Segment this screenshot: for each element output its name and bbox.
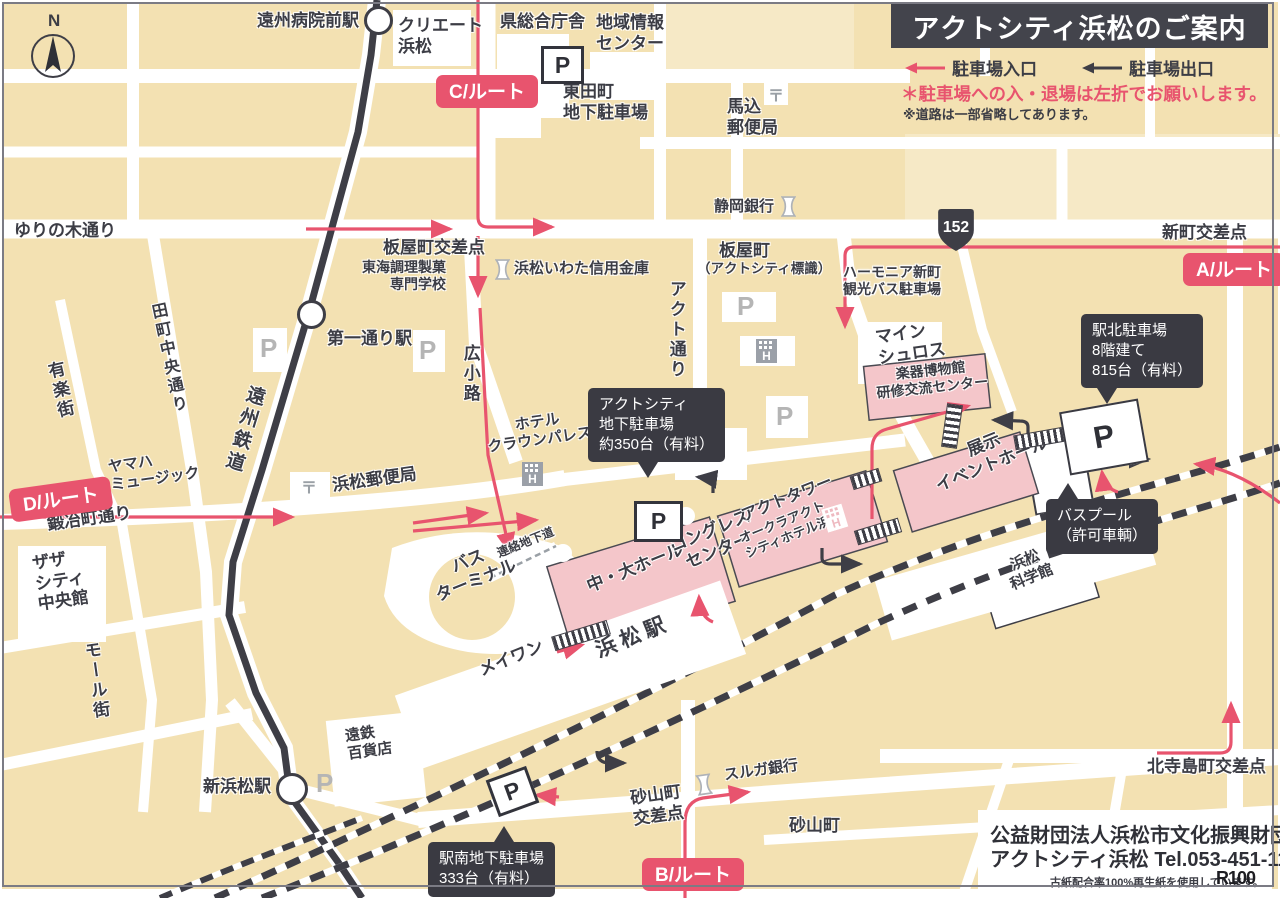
label-shin-hamamatsu-station: 新浜松駅 xyxy=(203,777,271,798)
label-act-dori: アクト通り xyxy=(665,280,686,380)
icon-station-enshu-byo inmae xyxy=(364,6,393,35)
icon-hotel-crown-palace: H xyxy=(520,462,545,491)
icon-bank-suruga xyxy=(695,773,713,801)
map-overlay: PPPPPPPPP〒〒HHH152遠州病院前駅クリエート浜松県総合庁舎地域情報セ… xyxy=(0,0,1280,898)
bridge-4 xyxy=(941,403,963,449)
icon-parking-gray-1: P xyxy=(260,335,277,361)
icon-parking-higashida: P xyxy=(541,46,584,84)
label-hamamatsu-iwata-shinkin: 浜松いわた信用金庫 xyxy=(514,260,649,278)
icon-hotel-generic: H xyxy=(754,339,779,368)
tooltip-ekiminami-parking: 駅南地下駐車場333台（有料） xyxy=(428,842,555,897)
tooltip-ekiminami-parking-pointer xyxy=(494,826,514,842)
label-shizuoka-bank: 静岡銀行 xyxy=(714,198,774,216)
label-itayacho: 板屋町 xyxy=(719,241,770,262)
label-tokai-chori-semmon: 東海調理製菓専門学校 xyxy=(362,259,446,293)
legend-exit: 駐車場出口 xyxy=(1082,55,1214,80)
tooltip-act-parking-pointer xyxy=(638,462,658,478)
label-zaza-city: ザザシティ中央館 xyxy=(31,547,90,616)
label-renraku-chikado: 連絡地下道 xyxy=(495,525,556,561)
icon-parking-gray-2: P xyxy=(419,337,436,363)
label-suruga-bank: スルガ銀行 xyxy=(723,757,799,785)
svg-text:H: H xyxy=(528,472,537,486)
svg-text:N: N xyxy=(48,11,60,30)
icon-parking-gray-3: P xyxy=(737,293,754,319)
icon-post-hamamatsu: 〒 xyxy=(297,475,321,497)
icon-route-shield-152: 152 xyxy=(937,209,975,251)
page-title: アクトシティ浜松のご案内 xyxy=(891,4,1268,48)
label-enshu-tetsudo: 遠州鉄道 xyxy=(219,382,268,477)
exit-arrow-icon xyxy=(1082,62,1122,74)
label-hamamatsu-station: 浜松駅 xyxy=(592,611,674,664)
icon-parking-gray-4: P xyxy=(776,403,793,429)
label-sunayamacho: 砂山町 xyxy=(789,816,840,837)
route-b-badge: B/ルート xyxy=(642,858,744,891)
entrance-arrow-icon xyxy=(905,62,945,74)
legend-exit-label: 駐車場出口 xyxy=(1129,55,1214,80)
label-ken-sogo-chosha: 県総合庁舎 xyxy=(500,12,585,33)
icon-parking-act: P xyxy=(634,501,683,542)
icon-bank-iwata-shinkin xyxy=(495,259,510,285)
label-act-city-hyoshiki: （アクトシティ標識） xyxy=(697,261,831,277)
label-yurinoki-dori: ゆりの木通り xyxy=(14,221,116,242)
label-enshu-byoinmae-station: 遠州病院前駅 xyxy=(257,11,359,32)
svg-text:H: H xyxy=(762,349,771,363)
bridge-3 xyxy=(850,468,883,490)
label-chiiki-joho-center: 地域情報センター xyxy=(596,13,664,54)
label-kita-terajima-kosaten: 北寺島町交差点 xyxy=(1147,757,1266,778)
label-entetsu-dept: 遠鉄百貨店 xyxy=(344,722,394,765)
bridge-2 xyxy=(854,518,902,546)
act-city-hamamatsu-access-map: N PPPPPPPPP〒〒HHH152遠州病院前駅クリエート浜松県総合庁舎地域情… xyxy=(0,0,1280,898)
icon-bank-shizuoka xyxy=(781,196,796,222)
legend-entrance-label: 駐車場入口 xyxy=(952,55,1037,80)
label-sunayama-kosaten: 砂山町交差点 xyxy=(629,782,685,830)
legend-entrance: 駐車場入口 xyxy=(905,55,1037,80)
svg-text:152: 152 xyxy=(943,219,970,236)
label-hamamatsu-post-office: 浜松郵便局 xyxy=(331,464,418,496)
label-meiwan: メイワン xyxy=(476,637,547,682)
tooltip-ekikita-parking: 駅北駐車場8階建て815台（有料） xyxy=(1081,314,1203,388)
footer: 公益財団法人浜松市文化振興財団 アクトシティ浜松 Tel.053-451-111… xyxy=(978,810,1272,889)
tooltip-ekikita-parking-pointer xyxy=(1097,388,1117,404)
icon-parking-gray-5: P xyxy=(316,770,333,796)
compass-icon: N xyxy=(24,8,82,84)
icon-post-magome: 〒 xyxy=(764,83,788,105)
route-a-badge: A/ルート xyxy=(1183,253,1280,286)
parking-left-turn-note: ＊駐車場への入・退場は左折でお願いします。 xyxy=(901,81,1267,106)
icon-parking-ekikita-building: P xyxy=(1059,399,1149,476)
r100-logo: R100 xyxy=(1216,868,1255,889)
tooltip-buspool: バスプール（許可車輌） xyxy=(1046,499,1158,554)
label-harmonia-shinmachi: ハーモニア新町観光バス駐車場 xyxy=(843,264,941,298)
label-yuraku-gai: 有楽街 xyxy=(42,359,76,422)
label-yamaha-music: ヤマハミュージック xyxy=(107,447,201,496)
road-omission-note: ※道路は一部省略してあります。 xyxy=(903,104,1096,123)
route-c-badge: C/ルート xyxy=(436,75,538,108)
label-itayacho-kosaten: 板屋町交差点 xyxy=(383,238,485,259)
label-shinmachi-kosaten: 新町交差点 xyxy=(1162,223,1247,244)
label-tamachi-chuo-dori: 田町中央通り xyxy=(146,301,189,417)
icon-parking-ekiminami: P xyxy=(486,766,540,817)
label-hotel-crown-palace: ホテルクラウンパレス xyxy=(484,406,593,457)
label-higashidacho-parking: 東田町地下駐車場 xyxy=(563,82,648,123)
tooltip-buspool-pointer xyxy=(1058,483,1078,499)
icon-station-daiichidori xyxy=(297,300,326,329)
label-mall-gai: モール街 xyxy=(79,640,111,722)
label-daiichidori-station: 第一通り駅 xyxy=(327,329,412,350)
icon-hotel-okura: H xyxy=(819,503,851,538)
label-hirokoji: 広小路 xyxy=(459,344,480,404)
tooltip-act-parking: アクトシティ地下駐車場約350台（有料） xyxy=(588,388,725,462)
icon-station-shin-hamamatsu xyxy=(276,773,308,805)
label-create-hamamatsu: クリエート浜松 xyxy=(398,16,483,57)
